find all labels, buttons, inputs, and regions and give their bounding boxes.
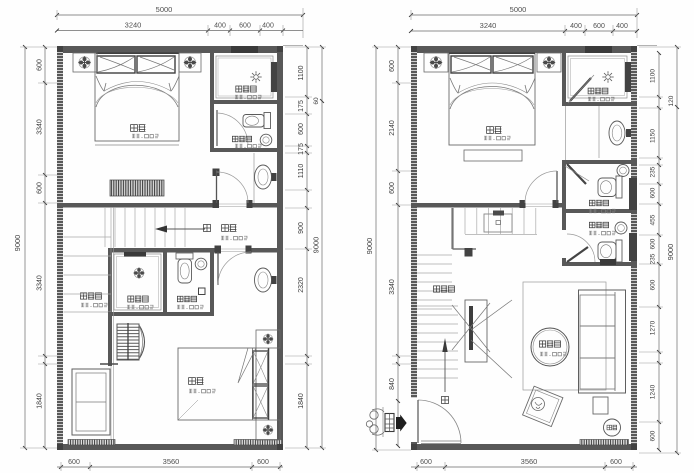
- svg-text:840: 840: [389, 378, 396, 390]
- svg-text:400: 400: [262, 23, 274, 30]
- svg-text:9000: 9000: [365, 238, 374, 255]
- svg-text:235: 235: [650, 253, 657, 264]
- svg-text:600: 600: [593, 23, 605, 30]
- svg-text:120: 120: [668, 95, 675, 106]
- svg-text:5000: 5000: [156, 5, 173, 14]
- svg-text:1150: 1150: [650, 129, 657, 143]
- svg-text:1110: 1110: [298, 164, 305, 179]
- svg-text:600: 600: [68, 459, 80, 466]
- svg-text:600: 600: [257, 459, 269, 466]
- svg-text:1840: 1840: [298, 393, 305, 409]
- svg-text:600: 600: [650, 187, 657, 198]
- svg-text:9000: 9000: [312, 237, 321, 254]
- svg-text:2320: 2320: [298, 277, 305, 293]
- svg-text:2140: 2140: [389, 120, 396, 136]
- svg-text:600: 600: [420, 459, 432, 466]
- svg-text:900: 900: [298, 222, 305, 234]
- svg-text:9000: 9000: [666, 244, 675, 261]
- svg-text:3560: 3560: [163, 457, 180, 466]
- svg-text:3240: 3240: [480, 21, 497, 30]
- svg-text:455: 455: [650, 214, 657, 225]
- svg-text:3340: 3340: [37, 119, 44, 135]
- svg-text:9000: 9000: [13, 235, 22, 252]
- svg-text:600: 600: [610, 459, 622, 466]
- svg-text:1270: 1270: [650, 320, 657, 335]
- svg-text:600: 600: [298, 123, 305, 135]
- svg-text:600: 600: [650, 279, 657, 290]
- svg-text:600: 600: [389, 60, 396, 72]
- svg-text:1100: 1100: [650, 69, 657, 83]
- svg-text:1240: 1240: [650, 384, 657, 399]
- svg-text:3340: 3340: [389, 279, 396, 295]
- svg-text:235: 235: [650, 166, 657, 177]
- svg-text:400: 400: [214, 23, 226, 30]
- svg-text:3560: 3560: [521, 457, 538, 466]
- svg-text:175: 175: [298, 143, 305, 155]
- svg-text:60: 60: [313, 97, 320, 105]
- svg-text:600: 600: [389, 182, 396, 194]
- svg-text:175: 175: [298, 100, 305, 112]
- svg-text:600: 600: [650, 430, 657, 441]
- svg-text:600: 600: [650, 238, 657, 249]
- svg-text:600: 600: [37, 59, 44, 71]
- svg-text:400: 400: [570, 23, 582, 30]
- svg-text:600: 600: [37, 182, 44, 194]
- svg-text:400: 400: [616, 23, 628, 30]
- svg-text:3340: 3340: [37, 275, 44, 291]
- svg-text:1100: 1100: [298, 65, 305, 80]
- svg-text:3240: 3240: [125, 21, 142, 30]
- svg-text:5000: 5000: [510, 5, 527, 14]
- svg-text:600: 600: [239, 23, 251, 30]
- svg-text:1840: 1840: [37, 393, 44, 409]
